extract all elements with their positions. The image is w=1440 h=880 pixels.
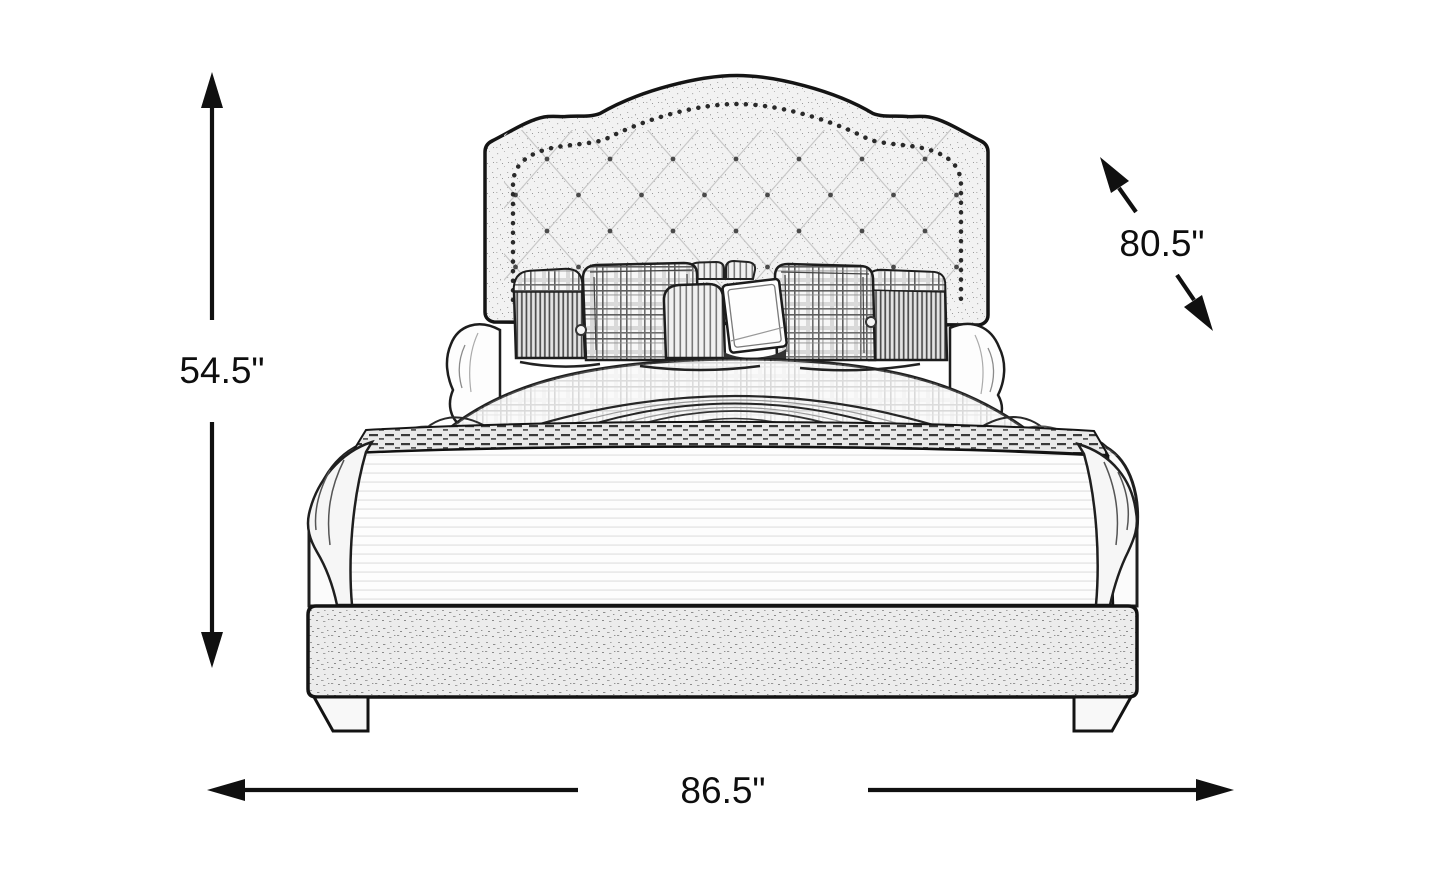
width-dimension-label: 86.5": [680, 770, 765, 811]
bed-illustration: [308, 76, 1138, 732]
dimension-diagram: 54.5" 80.5" 86.5": [0, 0, 1440, 880]
bed-dimension-drawing: 54.5" 80.5" 86.5": [0, 0, 1440, 880]
height-dimension-label: 54.5": [179, 350, 264, 391]
arrow-right-icon: [1196, 779, 1234, 801]
pillow-bolster-center: [664, 284, 725, 358]
pillow-striped-right: [867, 270, 947, 360]
bed-rail: [308, 606, 1137, 697]
sham-tie-knob-left: [576, 325, 586, 335]
arrow-up-icon: [201, 72, 223, 108]
pillow-plaid-sham-right: [775, 264, 876, 360]
arrow-down-icon: [201, 632, 223, 668]
mattress-sheet: [340, 447, 1113, 605]
arrow-down-right-icon: [1184, 295, 1213, 331]
pillow-striped-left: [514, 269, 585, 358]
pillow-neckroll-right: [726, 261, 755, 279]
bed-foot-right: [1074, 697, 1131, 731]
sham-tie-knob-right: [866, 317, 876, 327]
depth-dimension-label: 80.5": [1119, 223, 1204, 264]
arrow-up-left-icon: [1100, 157, 1129, 193]
bed-foot-left: [314, 697, 368, 731]
arrow-left-icon: [207, 779, 245, 801]
